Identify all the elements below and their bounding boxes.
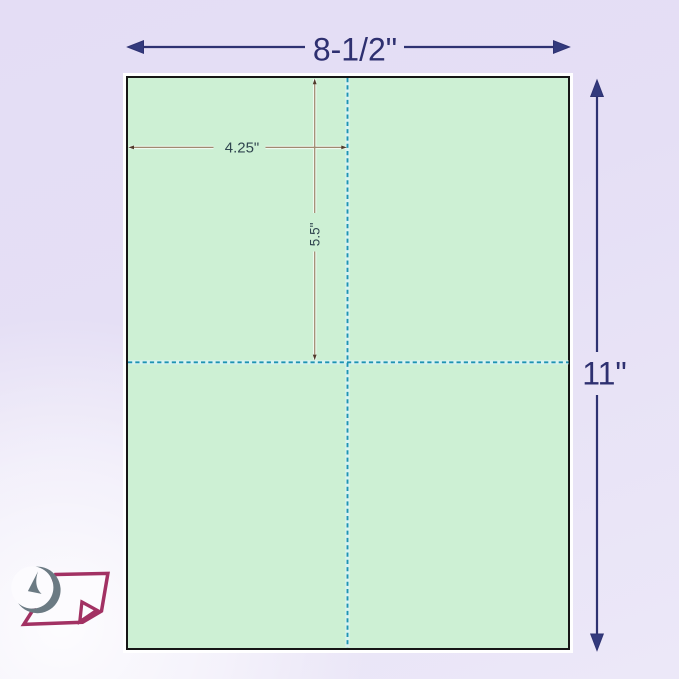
svg-text:11": 11" (582, 356, 627, 392)
svg-text:4.25": 4.25" (225, 139, 260, 156)
svg-text:8-1/2": 8-1/2" (313, 32, 397, 68)
svg-text:5.5": 5.5" (308, 222, 323, 246)
